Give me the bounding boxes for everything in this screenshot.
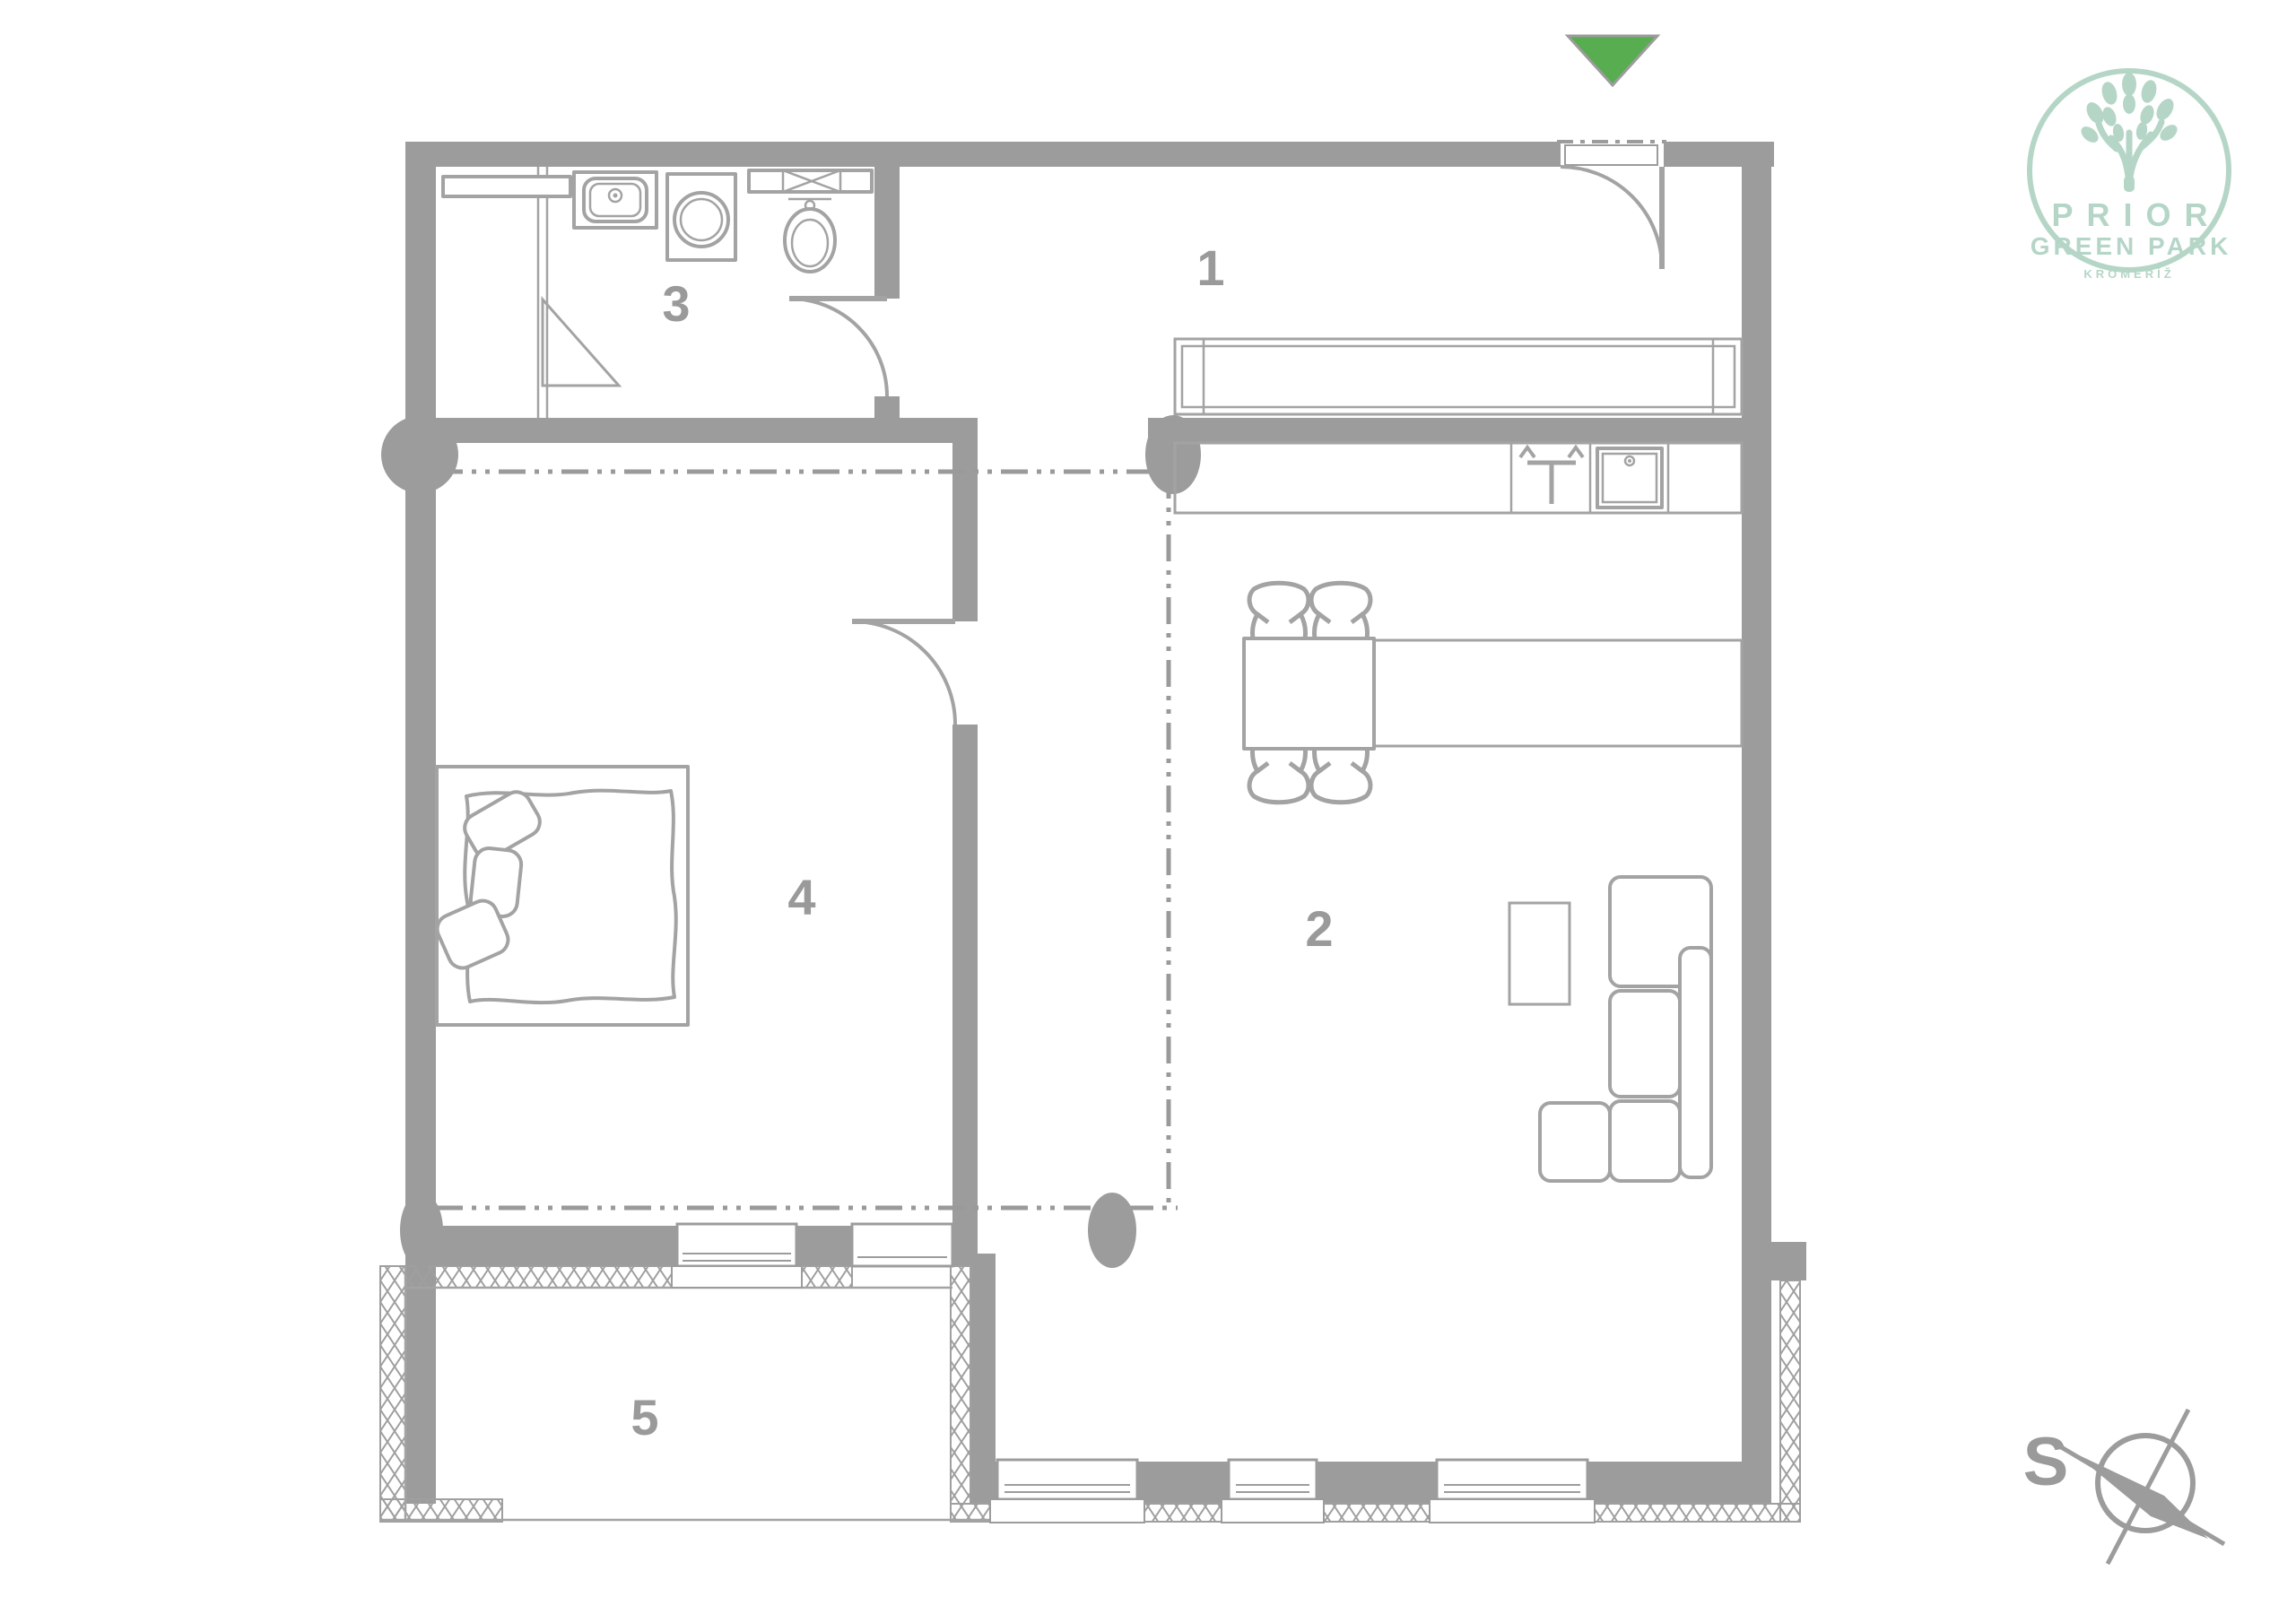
logo-subtitle: GREEN PARK [2031, 232, 2232, 260]
wall-hall-livingroom [1148, 418, 1742, 443]
compass-needle-icon [2058, 1410, 2224, 1564]
wall-room4-bottom-mid [796, 1226, 852, 1266]
hatch-balcony-top-b [796, 1266, 852, 1288]
sofa-seat-middle [1610, 991, 1680, 1097]
hatch-balcony-left [380, 1266, 405, 1522]
logo-brand: PRIOR [2051, 196, 2221, 233]
compass: S [2023, 1410, 2224, 1564]
sofa-backrest [1680, 948, 1711, 1177]
kitchen-bar-counter [1374, 640, 1742, 746]
room-label-4: 4 [787, 869, 817, 925]
coffee-table [1509, 903, 1570, 1004]
balcony-outline [380, 1266, 996, 1520]
wall-livingroom-bottom-2 [1137, 1462, 1229, 1504]
floor-plan-canvas: 1 2 3 4 5 [0, 0, 2296, 1623]
window-bedroom-balcony [672, 1224, 802, 1288]
wall-room4-bottom-left [436, 1226, 677, 1266]
hatch-right-lower [1780, 1280, 1800, 1522]
dining-table [1244, 638, 1374, 749]
wall-room3-right-upper [874, 167, 900, 299]
window-livingroom-1 [990, 1460, 1144, 1523]
sofa [1540, 877, 1711, 1181]
hatch-balcony-right [951, 1266, 970, 1504]
entrance-door-frame [1565, 145, 1657, 165]
wall-room3-right-lower [874, 396, 900, 418]
dining-area [1244, 583, 1742, 803]
washing-machine [667, 174, 735, 260]
column-top-left [381, 416, 458, 493]
kitchen-sink [1597, 448, 1662, 508]
wall-livingroom-bottom-3 [1317, 1462, 1437, 1504]
hatch-balcony-top-a [405, 1266, 677, 1288]
floor-plan-page: 1 2 3 4 5 [0, 0, 2296, 1623]
entrance-door [1557, 140, 1666, 269]
entrance-door-arc [1561, 167, 1662, 268]
sofa-seat-bottom [1610, 1101, 1680, 1181]
wall-livingroom-bottom-1 [970, 1462, 997, 1504]
wall-room3-bottom [405, 418, 978, 443]
room-label-5: 5 [631, 1389, 660, 1445]
bedroom-door-arc [852, 621, 955, 725]
window-livingroom-3 [1430, 1460, 1595, 1523]
compass-north-label: S [2023, 1424, 2069, 1500]
toilet [749, 170, 872, 272]
outer-wall-left [405, 142, 436, 1504]
wall-livingroom-bottom-4 [1587, 1462, 1771, 1504]
bedroom-furniture [432, 767, 688, 1025]
room-label-3: 3 [662, 275, 691, 332]
wall-room4-right-lower [952, 725, 978, 1266]
kitchen [1175, 443, 1742, 513]
outer-wall-top-left-segment [405, 142, 1561, 167]
logo-city: KROMĚŘÍŽ [2083, 267, 2174, 281]
window-livingroom-2 [1222, 1460, 1324, 1523]
column-bottom-center [1088, 1193, 1136, 1268]
sofa-ottoman [1540, 1103, 1610, 1181]
hall-furniture [1175, 339, 1742, 414]
kitchen-faucet-icon [1520, 447, 1583, 504]
bathroom-fixtures [443, 167, 872, 418]
bathroom-door-arc [789, 299, 887, 396]
slope-triangle [543, 299, 619, 386]
bathroom-door [789, 299, 887, 396]
room-label-1: 1 [1196, 239, 1226, 296]
bedroom-door [852, 621, 955, 725]
wall-right-stub [1742, 1242, 1806, 1280]
bathroom-sink [574, 172, 657, 228]
closet-shelf [443, 177, 570, 196]
entrance-marker-icon [1568, 36, 1657, 85]
column-top-center [1145, 415, 1201, 494]
room-label-2: 2 [1305, 900, 1335, 957]
hatch-balcony-bottom-left [380, 1499, 502, 1522]
logo: PRIOR GREEN PARK KROMĚŘÍŽ [2030, 71, 2231, 281]
column-bottom-left [400, 1193, 443, 1268]
outer-wall-right [1742, 142, 1771, 1504]
living-area [1509, 877, 1711, 1181]
wardrobe [1175, 339, 1742, 414]
balcony-door-opening [852, 1224, 952, 1266]
